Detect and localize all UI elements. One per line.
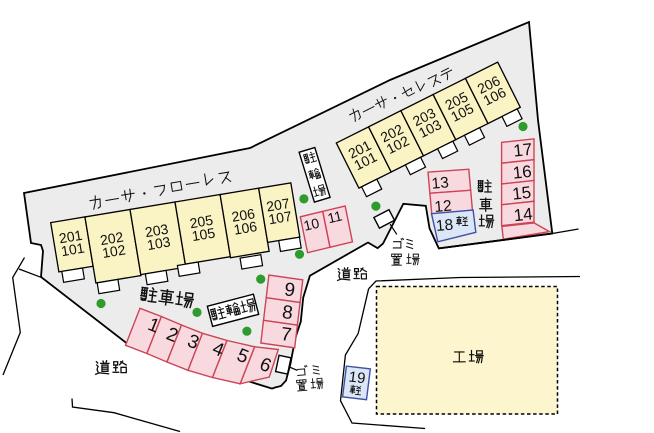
svg-text:15: 15 <box>511 183 532 204</box>
svg-text:19: 19 <box>348 369 367 388</box>
svg-text:12: 12 <box>434 198 453 216</box>
svg-text:14: 14 <box>513 204 534 225</box>
svg-text:16: 16 <box>512 162 533 183</box>
svg-text:18: 18 <box>435 216 454 234</box>
svg-text:13: 13 <box>431 174 450 192</box>
svg-text:17: 17 <box>512 140 533 161</box>
